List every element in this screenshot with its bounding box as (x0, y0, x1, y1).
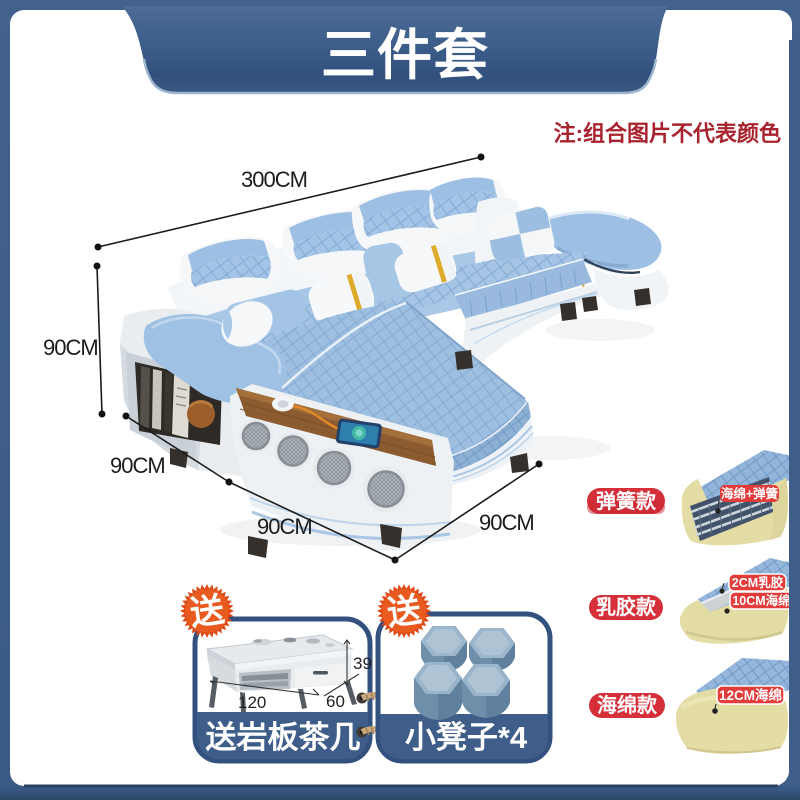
svg-text:120: 120 (238, 693, 266, 712)
svg-text:90CM: 90CM (43, 335, 98, 360)
svg-text:弹簧款: 弹簧款 (596, 489, 657, 513)
svg-text:送: 送 (188, 591, 227, 633)
svg-text:小凳子*4: 小凳子*4 (405, 720, 528, 755)
svg-text:送: 送 (385, 591, 424, 633)
svg-text:300CM: 300CM (241, 167, 307, 192)
svg-text:60: 60 (326, 692, 345, 711)
svg-text:39: 39 (353, 654, 372, 673)
svg-text:注:组合图片不代表颜色: 注:组合图片不代表颜色 (554, 121, 781, 146)
svg-text:乳胶款: 乳胶款 (596, 595, 657, 619)
svg-text:90CM: 90CM (110, 453, 165, 478)
svg-text:海绵款: 海绵款 (597, 693, 658, 717)
svg-text:送岩板茶几: 送岩板茶几 (206, 720, 361, 755)
svg-text:三件套: 三件套 (321, 24, 489, 86)
svg-text:90CM: 90CM (479, 510, 534, 535)
svg-text:10CM海绵: 10CM海绵 (732, 593, 790, 608)
svg-text:12CM海绵: 12CM海绵 (719, 687, 782, 703)
svg-text:2CM乳胶: 2CM乳胶 (732, 575, 784, 590)
svg-text:海绵+弹簧: 海绵+弹簧 (721, 486, 779, 501)
